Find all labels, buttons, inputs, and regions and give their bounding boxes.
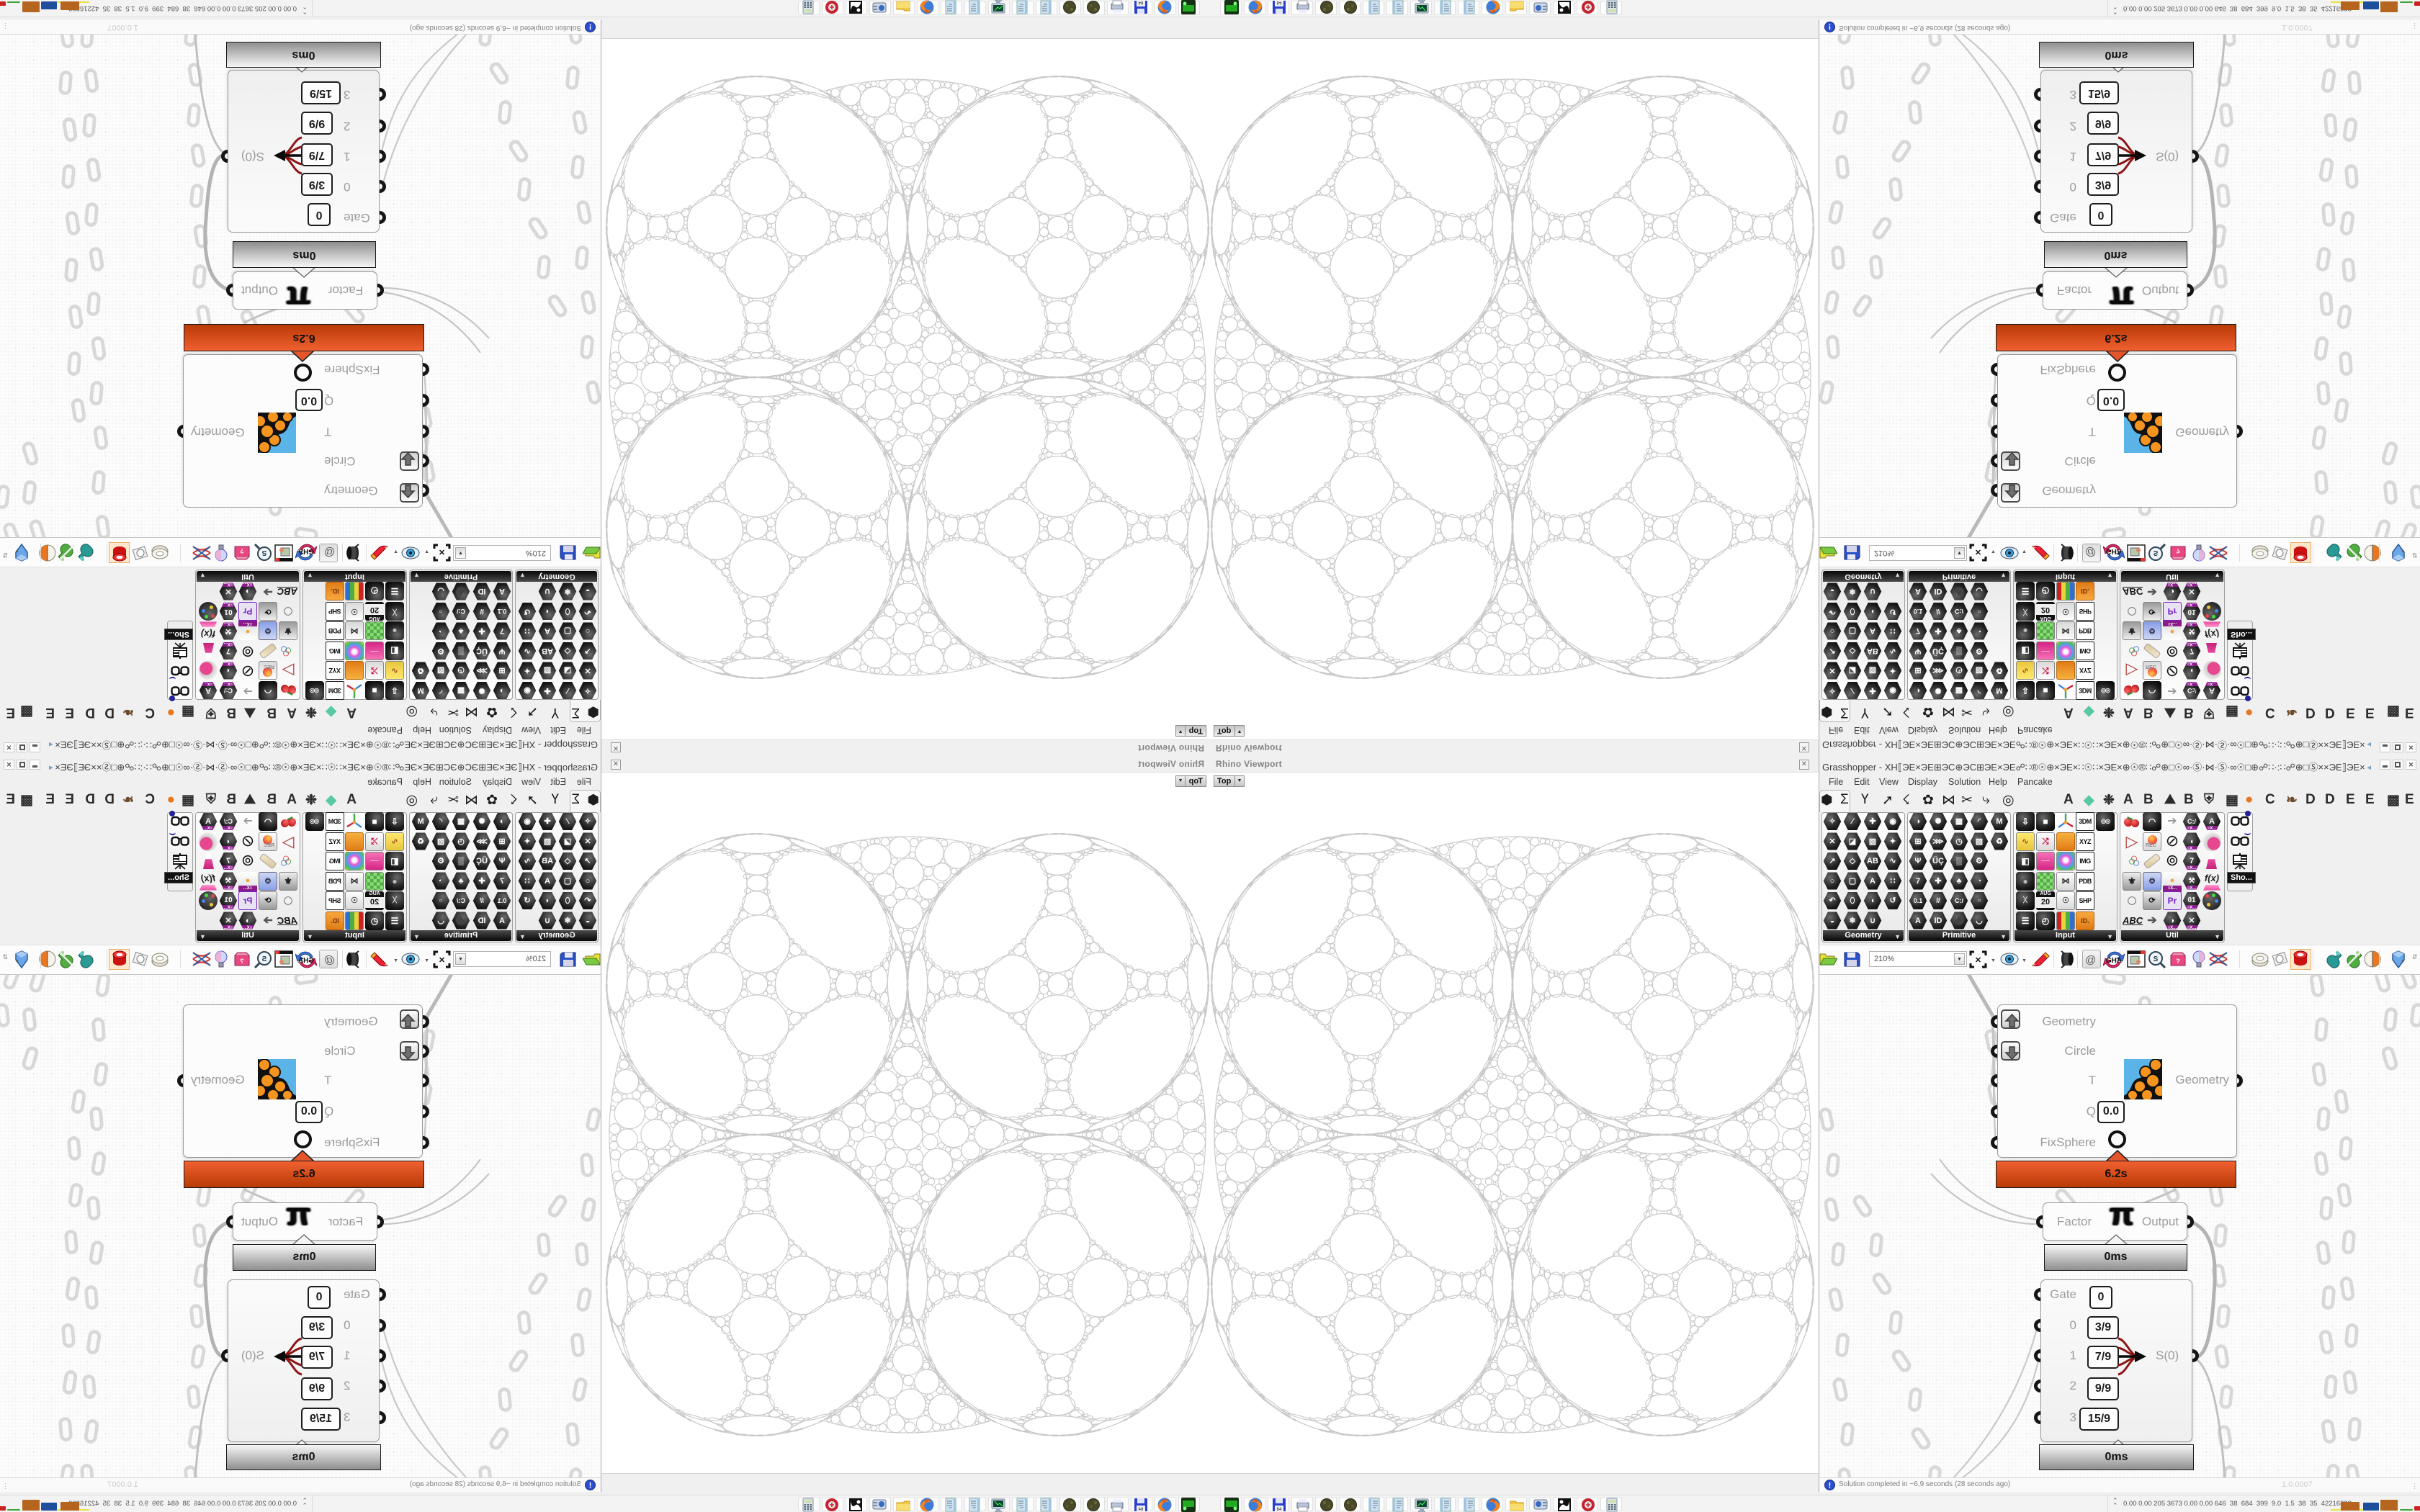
svg-text:GHA: GHA: [298, 547, 314, 555]
svg-text:!: !: [1829, 1482, 1832, 1490]
svg-text:GHA: GHA: [298, 957, 314, 965]
svg-text:GHA: GHA: [2106, 957, 2122, 965]
svg-text:✕: ✕: [439, 956, 445, 965]
svg-text:✕: ✕: [1975, 956, 1981, 965]
svg-text:!: !: [589, 1482, 592, 1490]
svg-text:S: S: [261, 549, 266, 557]
svg-text:✕: ✕: [439, 547, 445, 556]
svg-text:?: ?: [2176, 958, 2180, 965]
svg-text:S: S: [2154, 549, 2159, 557]
svg-text:?: ?: [241, 958, 245, 965]
svg-text:GHA: GHA: [2106, 547, 2122, 555]
svg-text:S: S: [261, 955, 266, 963]
svg-text:!: !: [1829, 22, 1832, 31]
svg-text:?: ?: [241, 547, 245, 554]
svg-text:✕: ✕: [1975, 547, 1981, 556]
svg-text:!: !: [589, 22, 592, 31]
svg-text:S: S: [2154, 955, 2159, 963]
svg-text:?: ?: [2176, 547, 2180, 554]
